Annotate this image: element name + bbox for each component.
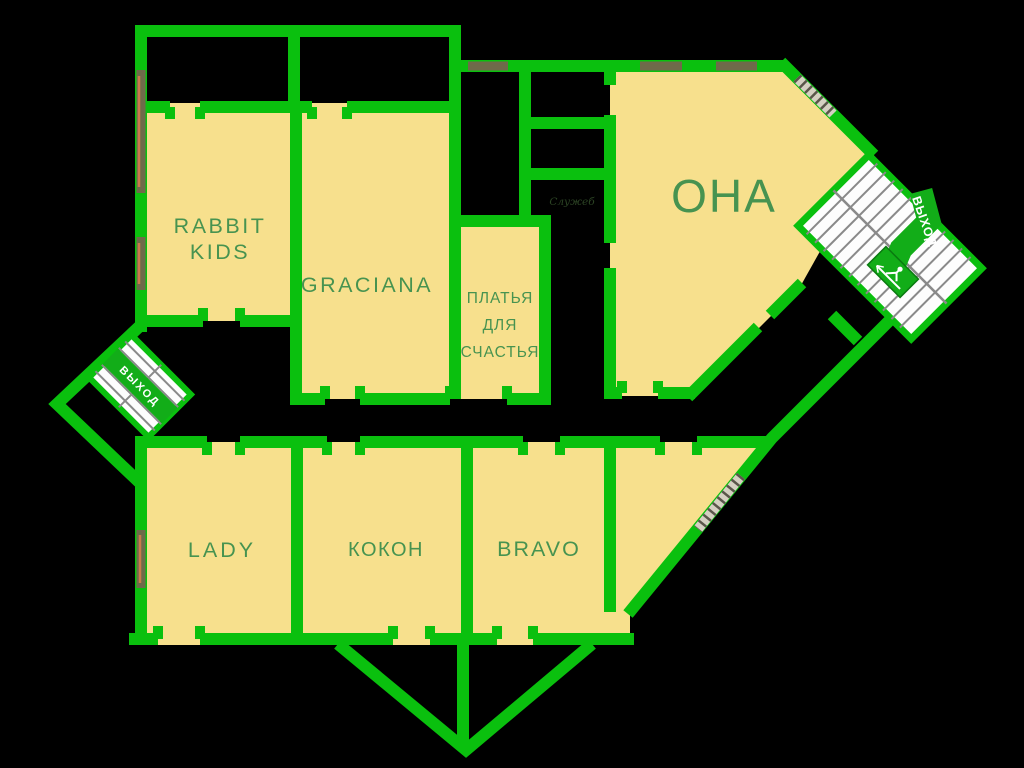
service-area-label: Служеб	[549, 196, 595, 208]
room-label-rabbit-kids-line2: KIDS	[190, 240, 250, 264]
room-label-kokon: КОКОН	[348, 539, 424, 561]
room-platya-shape	[455, 221, 545, 399]
room-label-graciana: GRACIANA	[301, 273, 433, 297]
room-label-platya-line2: ДЛЯ	[483, 317, 518, 334]
floorplan-canvas: ВЫХОД ВЫХОД RABBIT KIDS GRACIANA ПЛАТЬЯ …	[0, 0, 1024, 768]
room-label-platya-line1: ПЛАТЬЯ	[467, 290, 534, 307]
room-label-platya-line3: СЧАСТЬЯ	[461, 344, 540, 361]
room-label-bravo: BRAVO	[497, 537, 581, 561]
room-graciana-shape	[296, 103, 455, 399]
room-label-ona: ОНА	[671, 170, 777, 222]
room-rabbit-kids-shape	[147, 103, 296, 321]
room-label-rabbit-kids-line1: RABBIT	[174, 214, 267, 238]
room-label-lady: LADY	[188, 538, 256, 562]
